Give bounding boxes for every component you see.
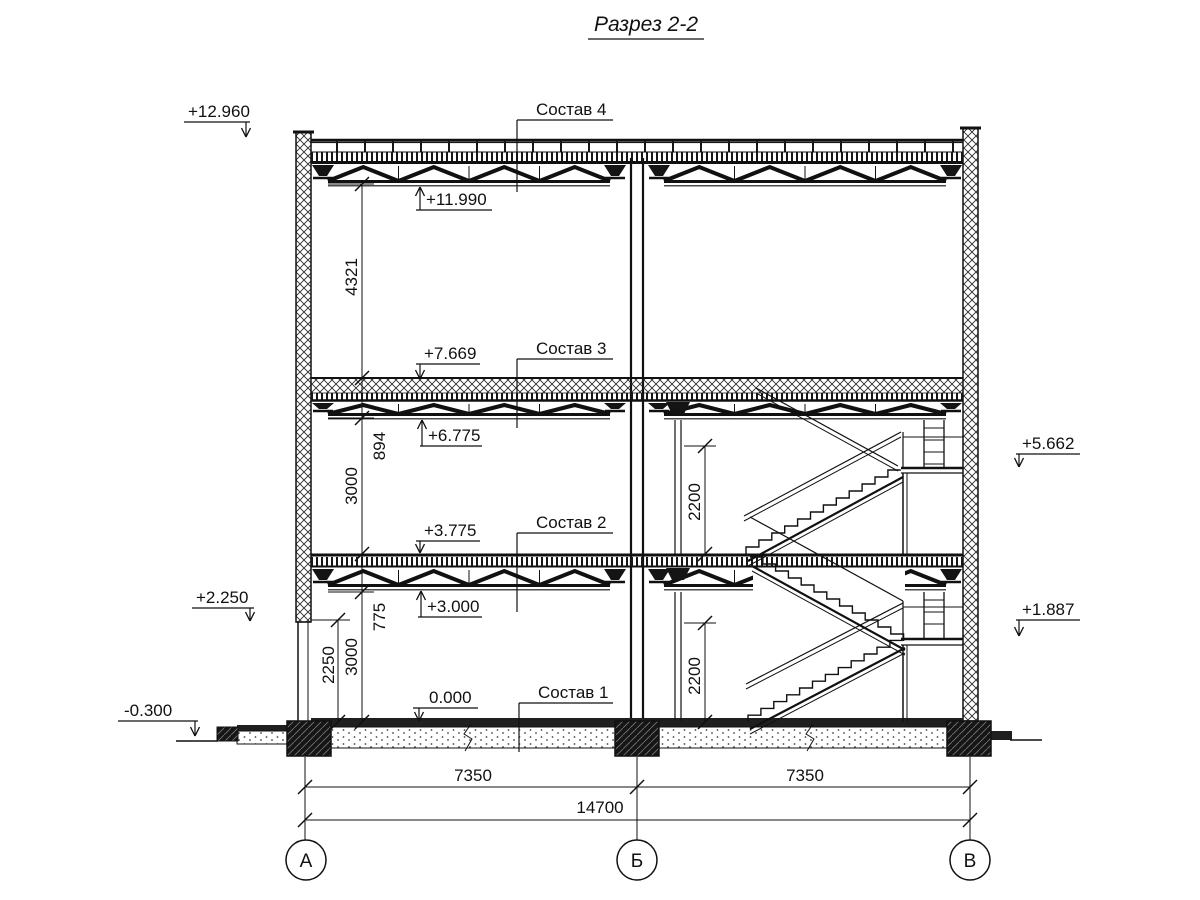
dim-894: 894 (370, 432, 389, 460)
dim-2200-low: 2200 (685, 657, 704, 695)
elevation-mark-minus0300: -0.300 (124, 701, 172, 720)
dim-7350-right: 7350 (786, 766, 824, 785)
elevation-mark-3775: +3.775 (424, 521, 476, 540)
dim-775: 775 (370, 603, 389, 631)
callout-sostav-2: Состав 2 (536, 513, 607, 532)
elevation-mark-5662: +5.662 (1022, 434, 1074, 453)
elevation-mark-1887: +1.887 (1022, 600, 1074, 619)
elevation-mark-6775: +6.775 (428, 426, 480, 445)
axis-label-v: В (964, 851, 977, 872)
callout-sostav-1: Состав 1 (538, 683, 609, 702)
elevation-mark-7669: +7.669 (424, 344, 476, 363)
dim-2200-up: 2200 (685, 483, 704, 521)
elevation-mark-3000: +3.000 (427, 597, 479, 616)
building-section-drawing: Разрез 2-2 +12.960 +11.990 +7.669 +6.775… (0, 0, 1200, 900)
axis-label-b: Б (631, 851, 643, 872)
structure-layer (176, 128, 1042, 756)
callout-sostav-3: Состав 3 (536, 339, 607, 358)
elevation-mark-0000: 0.000 (429, 688, 472, 707)
dim-4321: 4321 (342, 258, 361, 296)
dim-7350-left: 7350 (454, 766, 492, 785)
elevation-mark-2250: +2.250 (196, 588, 248, 607)
elevation-mark-12960: +12.960 (188, 102, 250, 121)
section-title: Разрез 2-2 (594, 13, 698, 36)
dimension-layer (118, 39, 1080, 880)
dim-3000-low: 3000 (342, 638, 361, 676)
dim-14700: 14700 (576, 798, 623, 817)
callout-sostav-4: Состав 4 (536, 100, 607, 119)
elevation-mark-11990: +11.990 (426, 190, 487, 209)
dim-3000-mid: 3000 (342, 467, 361, 505)
axis-label-a: А (300, 851, 313, 872)
dim-2250: 2250 (319, 646, 338, 684)
